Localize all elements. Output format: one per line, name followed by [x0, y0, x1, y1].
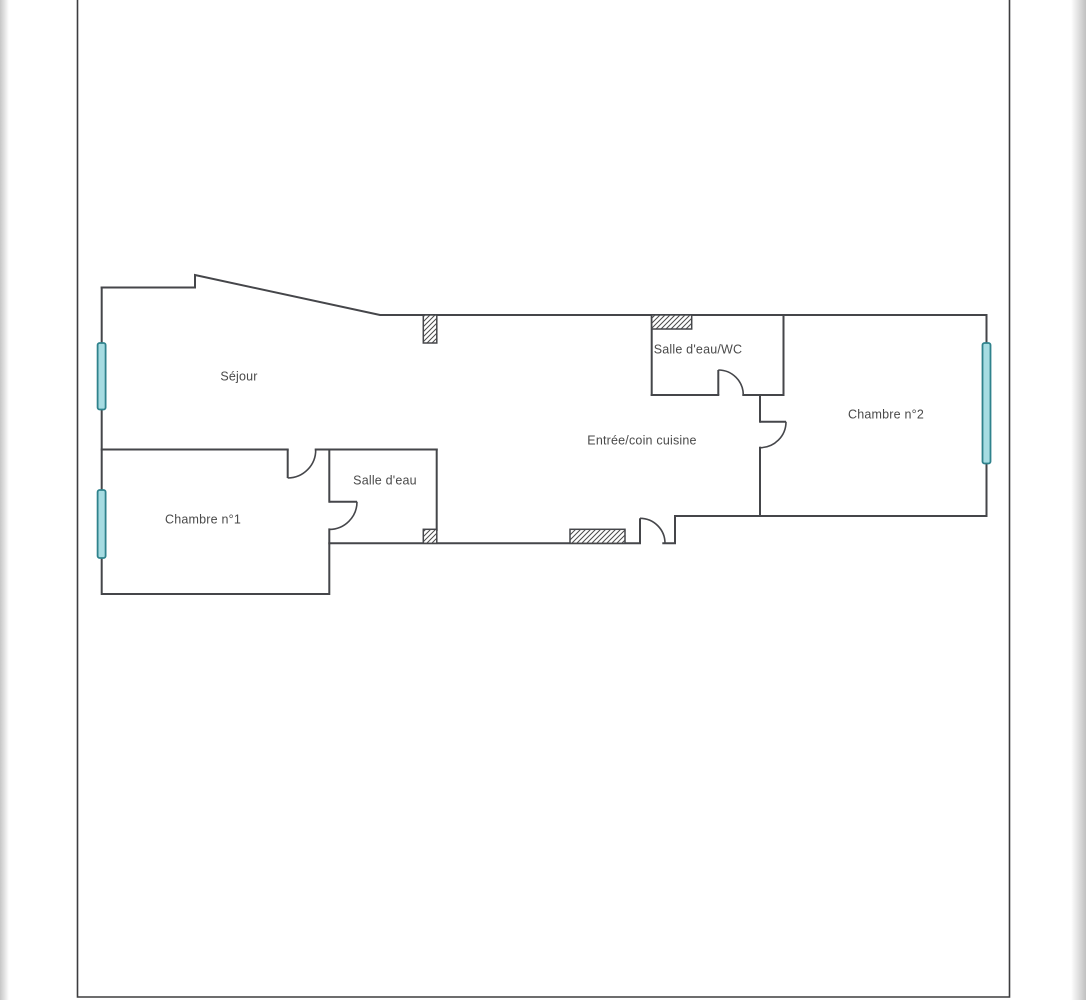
page-border-group — [78, 0, 1010, 997]
door-arc-salle-deau-wc — [718, 370, 743, 395]
walls-group — [102, 275, 987, 594]
vent-hatch-salle-deau-corner — [423, 529, 437, 543]
floor-plan-page: SéjourChambre n°1Salle d'eauEntrée/coin … — [0, 0, 1086, 1000]
vent-hatch-entree-bottom — [570, 529, 625, 543]
window-chambre2 — [983, 343, 991, 464]
room-label-entree-cuisine: Entrée/coin cuisine — [587, 433, 696, 447]
room-label-sejour: Séjour — [220, 369, 257, 383]
door-arc-entree-entrance — [640, 518, 665, 543]
vent-hatch-entree-top — [423, 315, 437, 343]
room-labels-group: SéjourChambre n°1Salle d'eauEntrée/coin … — [165, 342, 924, 526]
door-arc-chambre2 — [760, 422, 786, 448]
door-arc-sejour-to-chambre1 — [288, 450, 316, 479]
room-label-chambre-2: Chambre n°2 — [848, 407, 924, 421]
room-label-chambre-1: Chambre n°1 — [165, 512, 241, 526]
page-border — [78, 0, 1010, 997]
room-label-salle-deau-wc: Salle d'eau/WC — [654, 342, 743, 356]
wall-perimeter-bottom-left — [102, 288, 640, 595]
door-arc-salle-deau — [329, 502, 357, 530]
floor-plan-drawing: SéjourChambre n°1Salle d'eauEntrée/coin … — [0, 0, 1086, 1000]
window-sejour — [98, 343, 106, 410]
room-label-salle-deau: Salle d'eau — [353, 473, 417, 487]
vent-hatch-wc-top — [652, 315, 692, 329]
window-chambre1 — [98, 490, 106, 558]
